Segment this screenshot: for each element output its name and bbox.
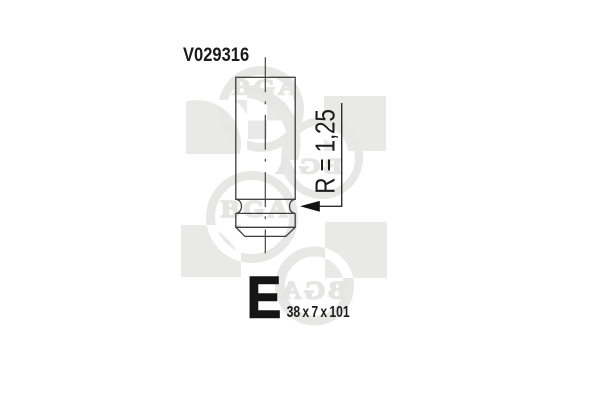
svg-text:R = 1,25: R = 1,25 <box>311 109 342 193</box>
svg-text:BGA: BGA <box>232 76 301 100</box>
svg-text:E: E <box>247 265 281 330</box>
svg-text:38 x 7 x 101: 38 x 7 x 101 <box>287 303 350 321</box>
svg-text:V029316: V029316 <box>183 44 249 65</box>
svg-text:BGA: BGA <box>278 276 346 304</box>
